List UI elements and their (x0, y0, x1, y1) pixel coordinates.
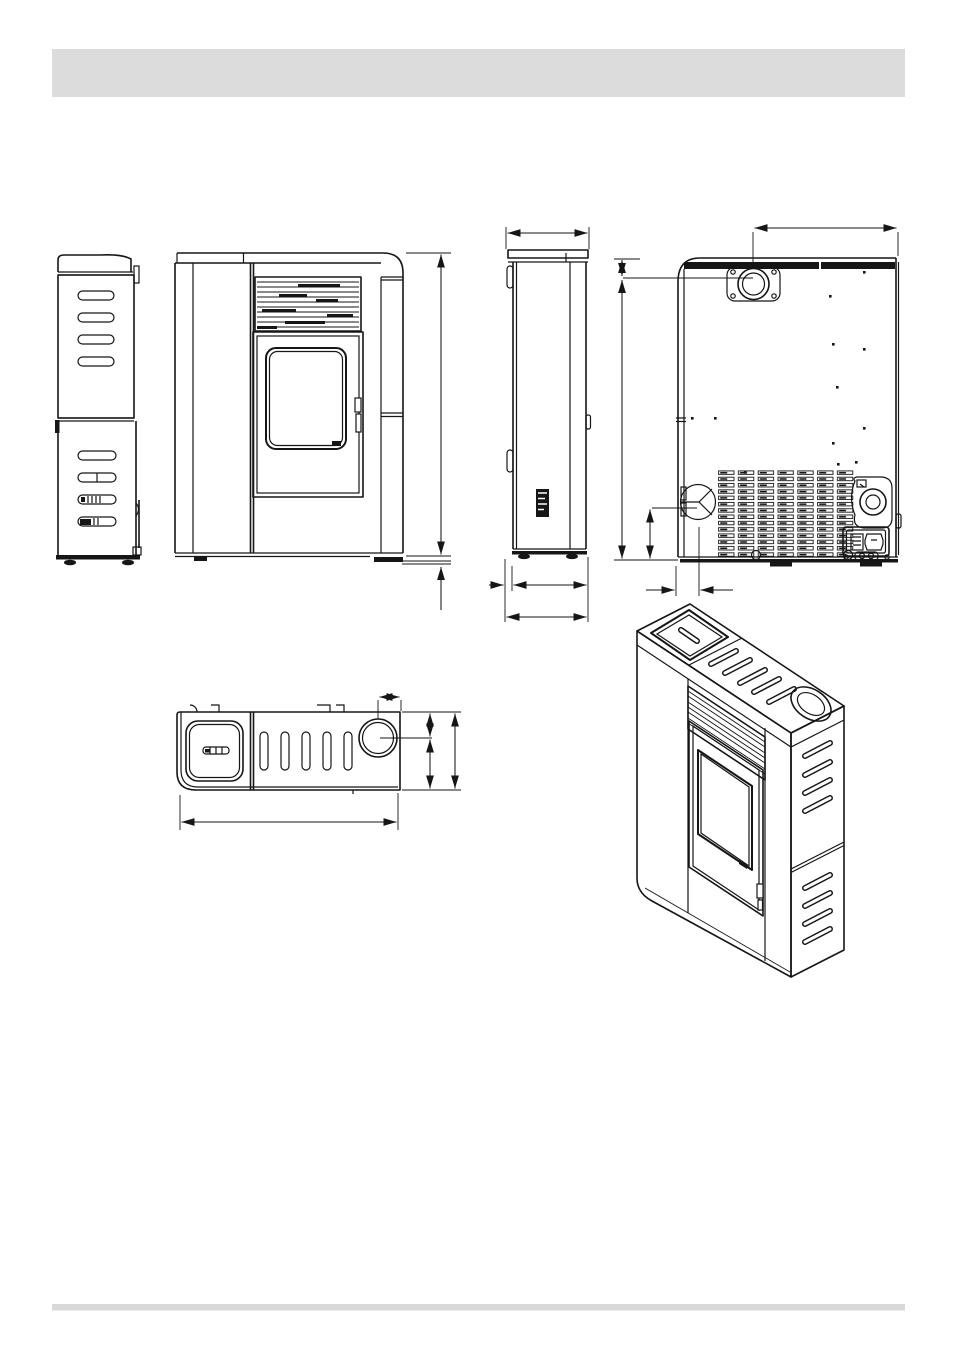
screws (691, 271, 866, 474)
right-pillar (381, 277, 403, 553)
foot (518, 554, 530, 559)
height-dimension (402, 253, 451, 610)
base-bar (680, 559, 898, 563)
side-profile-view (489, 227, 591, 622)
top-slots (711, 651, 794, 702)
top-width-dimension (506, 227, 589, 249)
width-dimension (180, 793, 398, 830)
hinge (507, 266, 513, 288)
foot (122, 560, 134, 566)
foot (860, 562, 882, 567)
header-bar (52, 49, 905, 97)
foot (374, 557, 403, 562)
hinge (507, 450, 513, 472)
manual-page (0, 0, 954, 1354)
side-panel-split (791, 842, 844, 873)
foot (566, 554, 578, 559)
door-handle (355, 398, 361, 412)
upper-panel (58, 275, 134, 418)
front-view (175, 253, 451, 610)
top-band (684, 262, 895, 269)
door-window (698, 750, 752, 870)
door-handle (757, 884, 763, 898)
top-slots (260, 732, 352, 770)
top-grille (255, 277, 361, 331)
footer-rule (52, 1304, 905, 1311)
upper-vent-slots (78, 291, 114, 366)
exhaust-fan (852, 477, 893, 528)
left-side-view (55, 255, 141, 565)
hopper-lid (186, 721, 243, 781)
flue-offset-dimension (378, 697, 401, 719)
vent-grid (718, 470, 856, 557)
top-cap (508, 250, 588, 258)
isometric-view (637, 604, 844, 977)
foot (770, 562, 792, 567)
rear-view (614, 228, 901, 596)
flue-outlet (727, 267, 780, 301)
depth-dimensions (489, 557, 588, 622)
lower-vent-slots (78, 451, 116, 526)
glass-door (253, 332, 363, 497)
side-vent-slots (791, 743, 844, 942)
top-view (177, 697, 461, 830)
top-cap (58, 255, 131, 272)
foot (64, 560, 76, 566)
glass-door (689, 721, 763, 916)
technical-drawing-canvas (0, 0, 954, 1354)
base-bar (56, 555, 140, 560)
body-outline (513, 262, 586, 549)
door-window (266, 348, 346, 449)
foot (194, 556, 207, 561)
combustion-air-inlet (681, 485, 716, 520)
body-outline (175, 253, 403, 553)
lower-panel (58, 421, 139, 555)
rating-label (536, 489, 549, 517)
